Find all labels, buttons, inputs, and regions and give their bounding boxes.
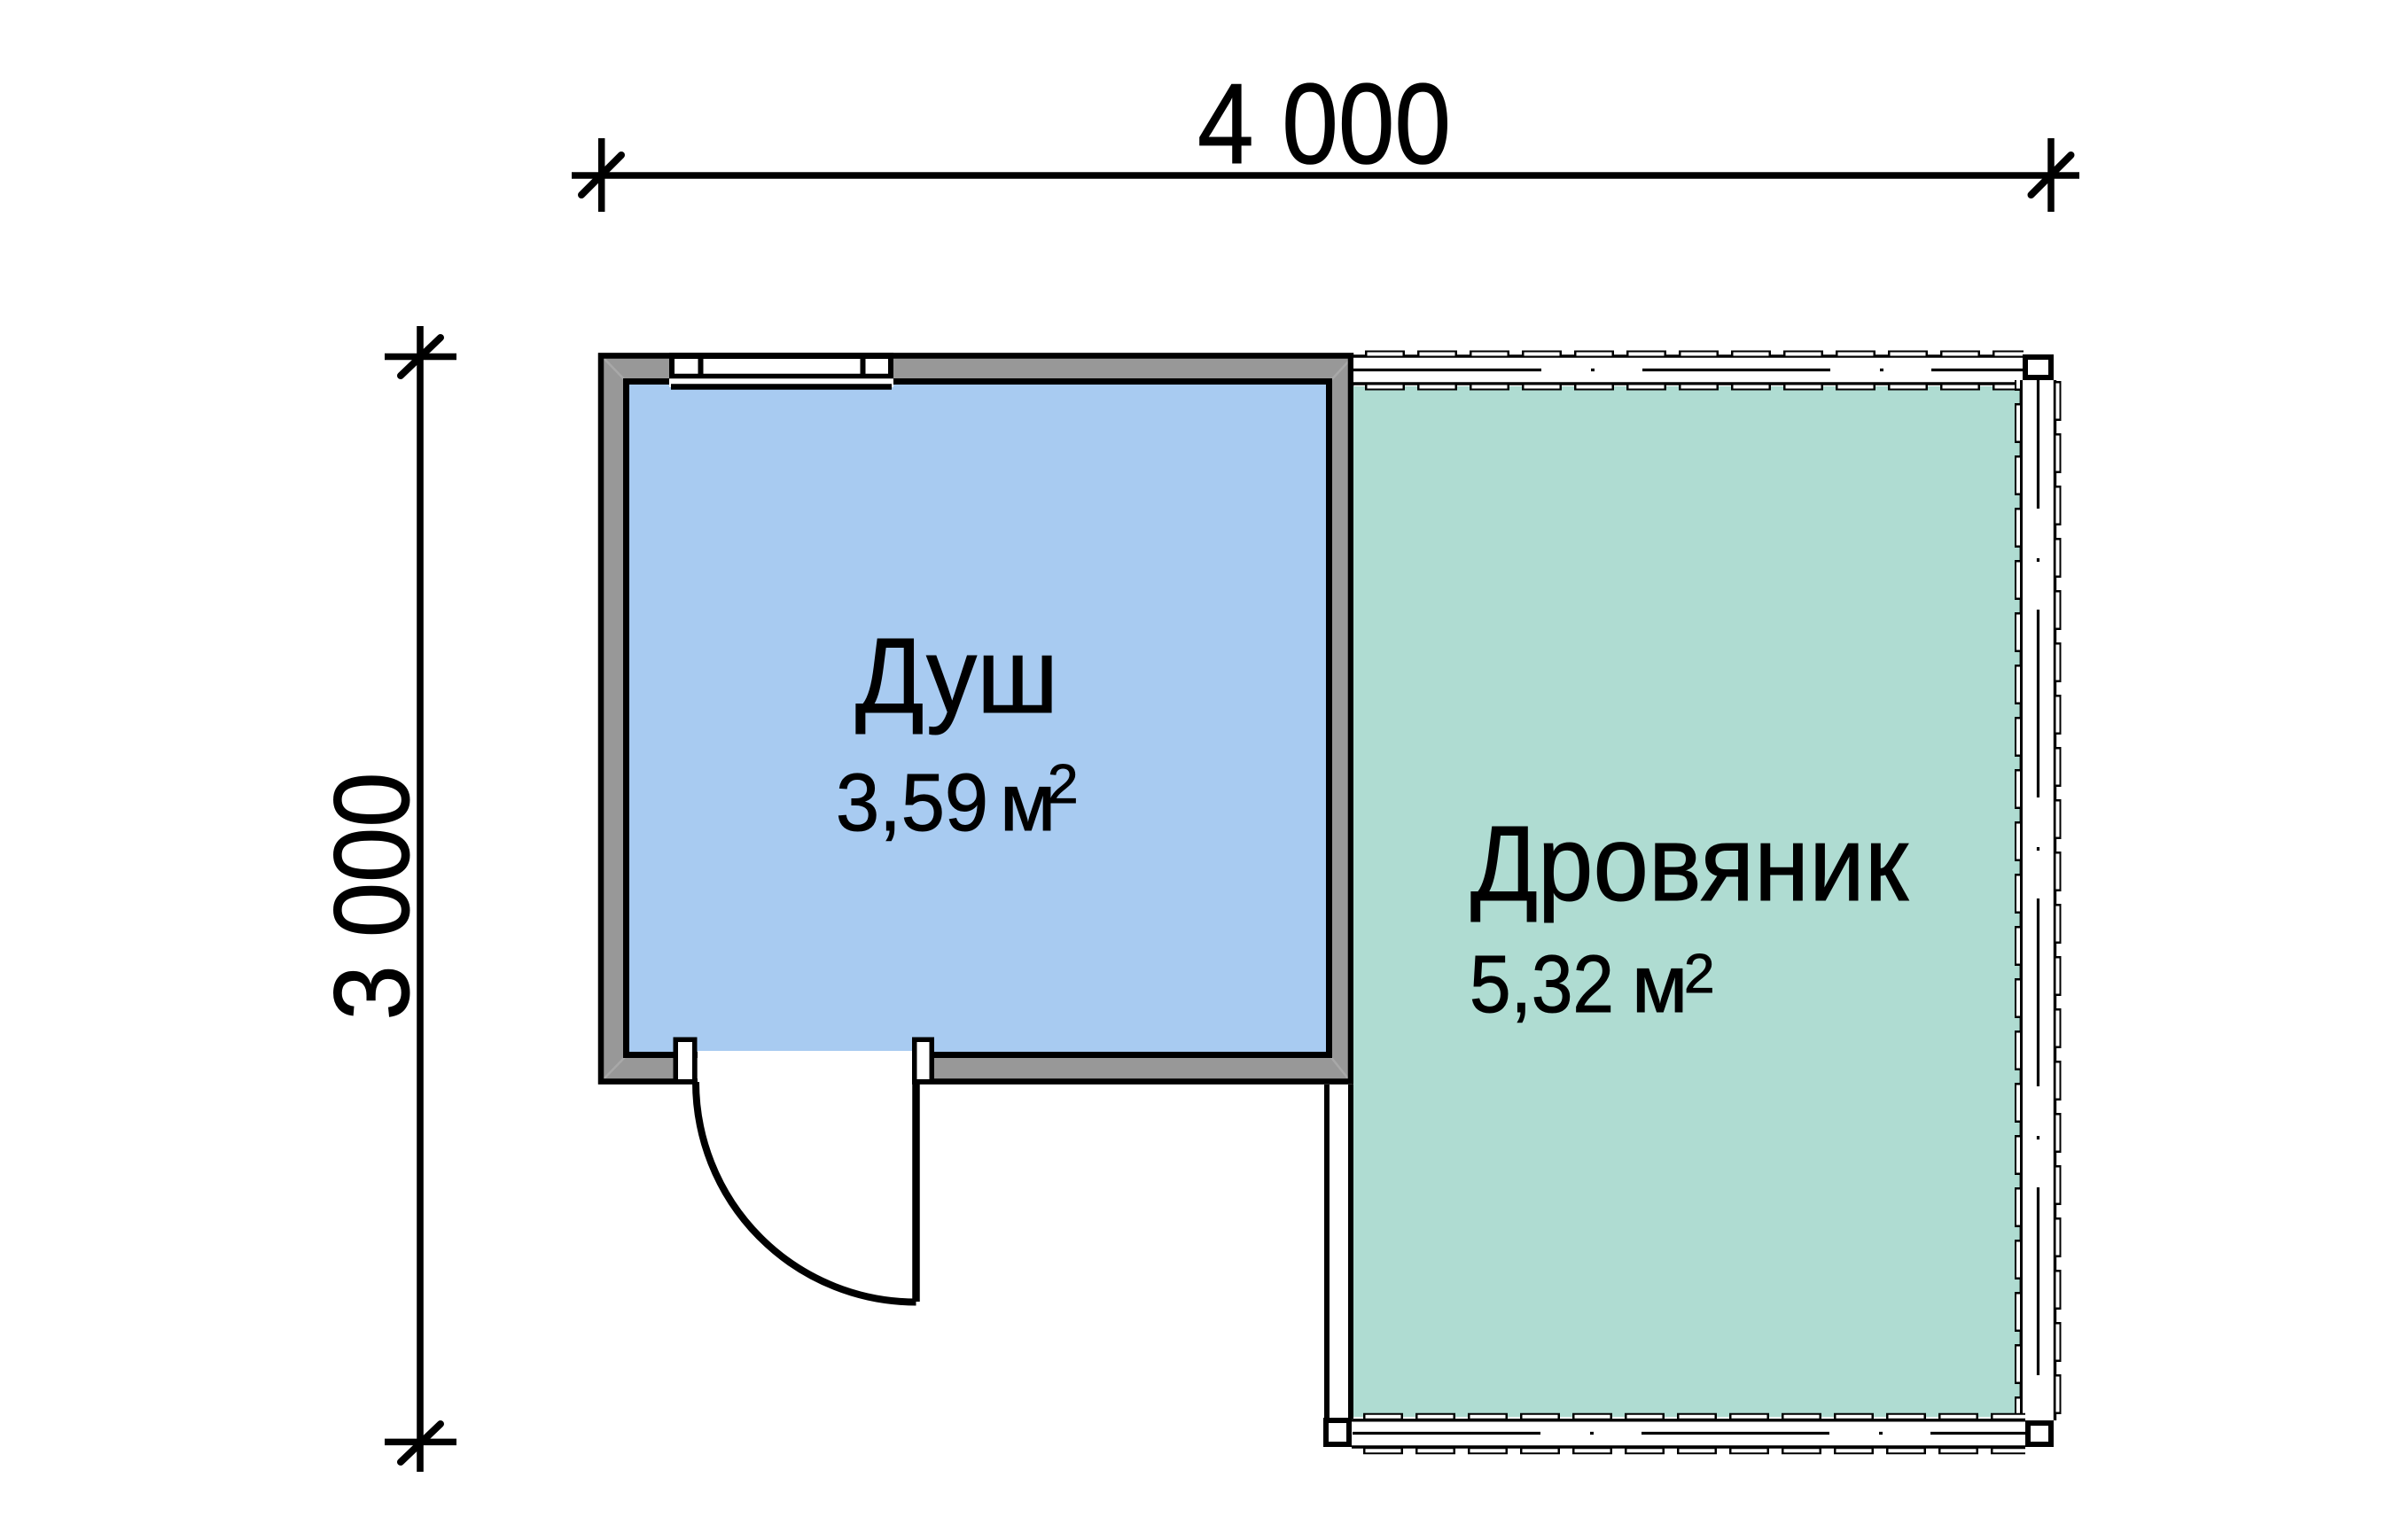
svg-text:2: 2: [1048, 754, 1078, 815]
svg-text:Дровяник: Дровяник: [1470, 803, 1909, 923]
svg-text:м: м: [1632, 939, 1688, 1030]
svg-text:4 000: 4 000: [1197, 60, 1451, 188]
svg-text:3,59: 3,59: [836, 758, 988, 848]
svg-text:Душ: Душ: [855, 615, 1058, 735]
svg-text:2: 2: [1684, 944, 1714, 1005]
svg-text:3 000: 3 000: [311, 773, 432, 1021]
svg-text:5,32: 5,32: [1470, 939, 1614, 1030]
